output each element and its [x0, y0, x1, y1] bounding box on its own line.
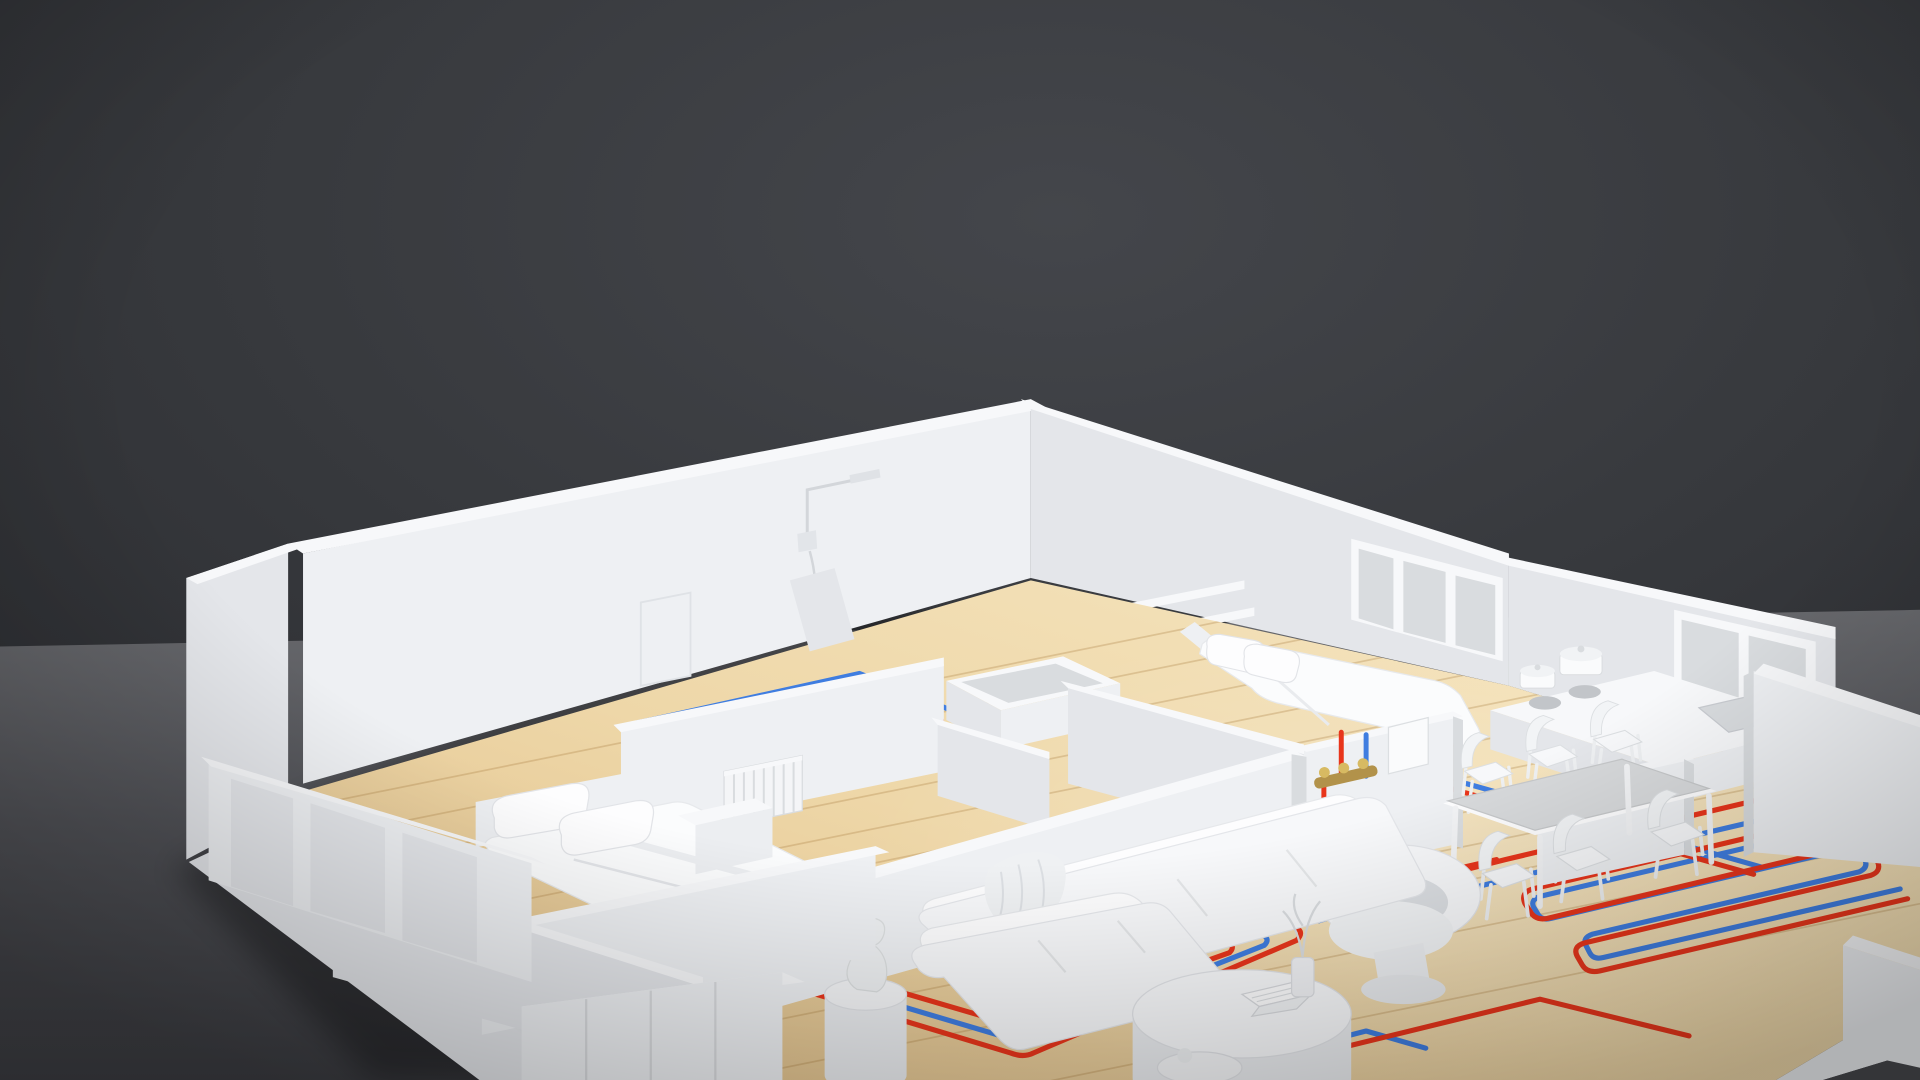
render-viewport	[0, 0, 1920, 1080]
apartment-cutaway-render	[0, 0, 1920, 1080]
vignette-overlay	[0, 0, 1920, 1080]
